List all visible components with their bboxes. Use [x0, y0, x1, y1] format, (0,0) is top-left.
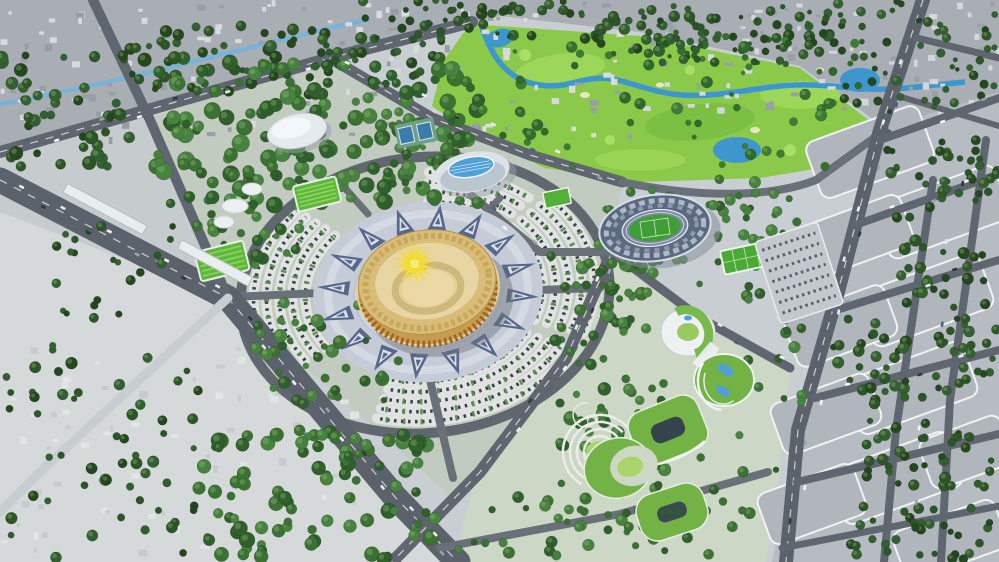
- tree: [607, 258, 617, 268]
- tree: [940, 522, 947, 529]
- small-building: [974, 34, 979, 40]
- tree: [333, 335, 346, 348]
- tree: [625, 17, 632, 24]
- small-building: [63, 377, 71, 383]
- tree: [638, 9, 645, 16]
- tree: [864, 456, 874, 466]
- tree: [360, 376, 371, 387]
- tree-highlight: [747, 150, 752, 155]
- tree: [859, 502, 868, 511]
- tree: [745, 149, 756, 160]
- tree: [284, 518, 292, 526]
- tree-highlight: [546, 1, 550, 5]
- tree: [872, 66, 878, 72]
- tree: [311, 314, 324, 327]
- small-building: [611, 79, 617, 85]
- tree: [644, 49, 653, 58]
- small-building: [302, 6, 306, 11]
- tree: [499, 538, 508, 547]
- tree: [908, 480, 919, 491]
- tree-highlight: [176, 81, 180, 85]
- tree: [249, 200, 258, 209]
- tree-highlight: [790, 343, 795, 348]
- tree: [962, 273, 974, 285]
- tree-highlight: [300, 400, 304, 404]
- tree-highlight: [239, 468, 245, 474]
- tree: [564, 144, 571, 151]
- small-building: [735, 94, 739, 99]
- tree: [207, 177, 219, 189]
- tree-highlight: [972, 137, 976, 141]
- small-building: [788, 54, 795, 61]
- tree: [942, 274, 950, 282]
- putting-green: [519, 49, 531, 61]
- tree: [478, 19, 488, 29]
- tree: [115, 311, 122, 318]
- tree-highlight: [637, 397, 641, 401]
- tree: [131, 458, 143, 470]
- tree: [736, 431, 744, 439]
- tree: [991, 83, 998, 90]
- tree: [572, 281, 580, 289]
- tree: [214, 443, 223, 452]
- tree: [883, 38, 892, 47]
- tree-highlight: [116, 110, 121, 115]
- tree: [89, 51, 100, 62]
- tree: [525, 129, 536, 140]
- tree-highlight: [433, 64, 440, 71]
- tree-highlight: [816, 48, 820, 52]
- tree: [743, 214, 750, 221]
- tree-highlight: [986, 468, 990, 472]
- tree-highlight: [67, 359, 72, 364]
- tree-highlight: [239, 550, 244, 555]
- aerial-masterplan-render: [0, 0, 999, 562]
- tree-highlight: [755, 384, 759, 388]
- tree: [339, 122, 347, 130]
- tree: [136, 268, 144, 276]
- tree: [352, 57, 358, 63]
- tree: [363, 338, 369, 344]
- small-building: [200, 545, 206, 549]
- tree: [745, 295, 753, 303]
- tree: [16, 161, 26, 171]
- tree-highlight: [253, 176, 258, 181]
- small-building: [391, 9, 399, 15]
- tree-highlight: [59, 391, 64, 396]
- tree-highlight: [331, 433, 337, 439]
- tree-highlight: [457, 197, 461, 201]
- small-building: [376, 11, 382, 18]
- small-building: [90, 94, 96, 101]
- small-building: [53, 482, 61, 487]
- tree: [169, 223, 175, 229]
- tree-highlight: [358, 49, 362, 53]
- tree: [342, 364, 351, 373]
- tree: [166, 199, 175, 208]
- tree: [935, 385, 942, 392]
- small-building: [591, 133, 596, 137]
- tree-highlight: [454, 134, 461, 141]
- tree-highlight: [960, 344, 964, 348]
- tree-highlight: [7, 514, 12, 519]
- tree: [729, 33, 737, 41]
- tree: [29, 361, 41, 373]
- tree-highlight: [956, 380, 960, 384]
- tree-highlight: [951, 100, 955, 104]
- small-building: [760, 31, 764, 35]
- tree-highlight: [584, 541, 589, 546]
- tree-highlight: [410, 531, 415, 536]
- tree-highlight: [213, 435, 220, 442]
- small-building: [915, 77, 919, 82]
- small-building: [345, 22, 352, 26]
- tree-highlight: [800, 51, 804, 55]
- tree-highlight: [296, 426, 301, 431]
- tree-highlight: [740, 231, 745, 236]
- tree: [141, 468, 151, 478]
- small-building: [614, 91, 620, 94]
- tree-highlight: [684, 534, 688, 538]
- tree: [230, 514, 239, 523]
- small-building: [215, 392, 223, 399]
- tree: [642, 288, 652, 298]
- tree-highlight: [144, 354, 148, 358]
- tree-highlight: [836, 342, 840, 346]
- tree: [508, 10, 513, 15]
- tree: [725, 195, 736, 206]
- tree-highlight: [798, 391, 802, 395]
- tree: [167, 236, 174, 243]
- tree-highlight: [649, 269, 654, 274]
- tree-highlight: [806, 42, 810, 46]
- tree-highlight: [250, 69, 256, 75]
- tree-highlight: [278, 64, 283, 69]
- tree: [317, 48, 325, 56]
- fairway: [595, 149, 685, 171]
- small-building: [262, 7, 266, 12]
- tree-highlight: [610, 13, 614, 17]
- tree: [190, 507, 197, 514]
- tree-highlight: [902, 453, 906, 457]
- small-building: [105, 510, 110, 513]
- tree-highlight: [121, 435, 125, 439]
- tree: [269, 72, 278, 81]
- tree: [516, 108, 525, 117]
- tree: [901, 393, 910, 402]
- small-building: [571, 127, 576, 132]
- tree-highlight: [557, 439, 561, 443]
- tree: [62, 231, 69, 238]
- tree-highlight: [773, 35, 777, 39]
- tree: [305, 537, 318, 550]
- small-building: [535, 85, 538, 90]
- tree: [659, 59, 667, 67]
- tree: [222, 55, 238, 71]
- tree: [859, 39, 864, 44]
- tree: [94, 296, 102, 304]
- small-building: [322, 495, 327, 500]
- tree-highlight: [770, 190, 774, 194]
- tree-highlight: [505, 548, 510, 553]
- tree-highlight: [168, 523, 173, 528]
- small-building: [328, 20, 333, 23]
- small-building: [503, 48, 511, 55]
- small-building: [20, 437, 26, 444]
- tree: [657, 18, 663, 24]
- small-building: [569, 86, 575, 93]
- tree: [739, 15, 743, 19]
- tree-highlight: [396, 109, 400, 113]
- tree: [394, 107, 403, 116]
- tree: [657, 23, 661, 27]
- tree: [126, 483, 134, 491]
- small-building: [16, 524, 20, 528]
- tree-highlight: [853, 543, 857, 547]
- small-building: [574, 83, 582, 86]
- tree-highlight: [216, 444, 220, 448]
- tree-highlight: [655, 34, 659, 38]
- tree: [443, 18, 448, 23]
- small-building: [200, 6, 205, 10]
- tree-highlight: [262, 133, 267, 138]
- tree-highlight: [257, 330, 261, 334]
- tree: [208, 485, 222, 499]
- tree: [805, 21, 809, 25]
- small-building: [72, 61, 80, 67]
- tree: [729, 92, 733, 96]
- tree: [742, 54, 748, 60]
- tree-highlight: [267, 42, 272, 47]
- tree: [722, 215, 730, 223]
- tree: [155, 157, 164, 166]
- tree: [654, 481, 662, 489]
- tree-highlight: [31, 393, 35, 397]
- tree: [870, 318, 880, 328]
- tree: [295, 176, 303, 184]
- tree: [564, 519, 570, 525]
- tree: [961, 314, 970, 323]
- tree-highlight: [848, 541, 852, 545]
- tree: [115, 259, 121, 265]
- tree: [745, 282, 754, 291]
- tree-highlight: [872, 353, 877, 358]
- tree-highlight: [599, 25, 603, 29]
- tree-highlight: [446, 63, 453, 70]
- tree: [974, 368, 982, 376]
- tree-highlight: [277, 225, 282, 230]
- tree: [471, 539, 477, 545]
- tree: [193, 482, 206, 495]
- tree-highlight: [871, 400, 876, 405]
- tree: [968, 157, 975, 164]
- tree-highlight: [740, 43, 745, 48]
- small-building: [755, 10, 763, 13]
- tree: [932, 97, 940, 105]
- tree: [285, 78, 294, 87]
- tree: [769, 189, 779, 199]
- tree: [326, 49, 333, 56]
- small-building: [909, 87, 913, 91]
- tree: [214, 547, 229, 562]
- tree-highlight: [982, 300, 986, 304]
- tree: [499, 132, 506, 139]
- small-building: [25, 43, 29, 49]
- tree-highlight: [370, 79, 375, 84]
- tree-highlight: [23, 97, 27, 101]
- tree: [973, 197, 979, 203]
- tree-highlight: [377, 121, 382, 126]
- tree: [416, 68, 424, 76]
- small-building: [552, 98, 559, 104]
- tree: [448, 118, 455, 125]
- small-building: [82, 94, 90, 99]
- tree: [143, 353, 153, 363]
- tree: [573, 391, 580, 398]
- tree: [356, 47, 367, 58]
- tree-highlight: [403, 163, 409, 169]
- tree: [936, 49, 945, 58]
- tree-highlight: [595, 241, 599, 245]
- tree-highlight: [198, 67, 203, 72]
- tree-highlight: [297, 438, 302, 443]
- tree-highlight: [655, 47, 660, 52]
- tree-highlight: [711, 486, 715, 490]
- tree-highlight: [558, 324, 562, 328]
- tree: [975, 190, 982, 197]
- tree: [478, 105, 488, 115]
- tree: [735, 192, 742, 199]
- tree: [689, 19, 695, 25]
- tree: [663, 40, 669, 46]
- tree-highlight: [555, 515, 559, 519]
- sand-bunker: [750, 127, 760, 133]
- tree-highlight: [939, 187, 943, 191]
- tree: [558, 8, 563, 13]
- small-building: [602, 3, 611, 7]
- tree-highlight: [893, 424, 897, 428]
- tree-highlight: [239, 121, 246, 128]
- small-building: [272, 0, 276, 6]
- tree: [389, 180, 397, 188]
- tree: [29, 392, 39, 402]
- tree: [34, 410, 41, 417]
- tree-highlight: [893, 77, 897, 81]
- tree: [131, 43, 141, 53]
- tree: [781, 395, 788, 402]
- tree: [988, 458, 994, 464]
- tree: [352, 98, 360, 106]
- tree: [955, 189, 963, 197]
- tree: [976, 56, 984, 64]
- tree-highlight: [322, 474, 328, 480]
- tree: [55, 159, 65, 169]
- tree-highlight: [247, 110, 251, 114]
- tree-highlight: [289, 25, 294, 30]
- tree: [320, 472, 333, 485]
- small-building: [191, 76, 196, 81]
- tree: [671, 3, 677, 9]
- tree: [74, 388, 83, 397]
- tree: [580, 340, 587, 347]
- tree-highlight: [962, 315, 966, 319]
- tree-highlight: [271, 100, 277, 106]
- tree: [523, 505, 529, 511]
- tree: [7, 389, 14, 396]
- tree: [900, 508, 908, 516]
- tree-highlight: [280, 299, 285, 304]
- tree: [235, 79, 243, 87]
- tree: [830, 38, 839, 47]
- tree-highlight: [619, 319, 623, 323]
- tree: [346, 193, 355, 202]
- tree: [698, 44, 703, 49]
- tree: [942, 33, 951, 42]
- small-building: [9, 11, 12, 15]
- tree: [408, 437, 424, 453]
- tree: [856, 7, 865, 16]
- tree: [348, 110, 364, 126]
- tree-highlight: [378, 372, 382, 376]
- tree: [873, 434, 882, 443]
- tree-highlight: [872, 320, 876, 324]
- tree: [943, 457, 950, 464]
- tree-highlight: [948, 483, 952, 487]
- tree-highlight: [263, 152, 270, 159]
- tree-highlight: [613, 319, 617, 323]
- tree: [694, 56, 701, 63]
- ring-courtyard: [676, 322, 700, 342]
- tree: [569, 163, 575, 169]
- tree: [619, 92, 630, 103]
- tree: [703, 549, 713, 559]
- tree: [902, 298, 912, 308]
- small-building: [770, 101, 774, 106]
- tree: [786, 195, 793, 202]
- tree-highlight: [645, 61, 650, 66]
- tree: [450, 7, 456, 13]
- tree: [975, 539, 983, 547]
- tree: [868, 77, 877, 86]
- tree-highlight: [128, 410, 133, 415]
- tree-highlight: [949, 555, 953, 559]
- tree-highlight: [964, 274, 969, 279]
- tree: [738, 229, 749, 240]
- tree-highlight: [643, 36, 647, 40]
- small-building: [930, 79, 939, 84]
- tree: [869, 329, 878, 338]
- small-building: [524, 18, 528, 22]
- tree-highlight: [581, 494, 586, 499]
- small-building: [206, 454, 210, 459]
- tree-highlight: [132, 459, 137, 464]
- tree: [66, 357, 78, 369]
- tree: [888, 110, 892, 114]
- tree: [402, 179, 409, 186]
- tree-highlight: [11, 148, 17, 154]
- tree: [114, 379, 125, 390]
- tree: [843, 83, 850, 90]
- tree-highlight: [685, 13, 690, 18]
- tree: [898, 342, 909, 353]
- tree-highlight: [263, 438, 269, 444]
- tree-highlight: [756, 290, 760, 294]
- tree: [79, 83, 89, 93]
- tree: [698, 30, 705, 37]
- tree: [403, 7, 409, 13]
- tree: [33, 150, 41, 158]
- tree: [934, 29, 941, 36]
